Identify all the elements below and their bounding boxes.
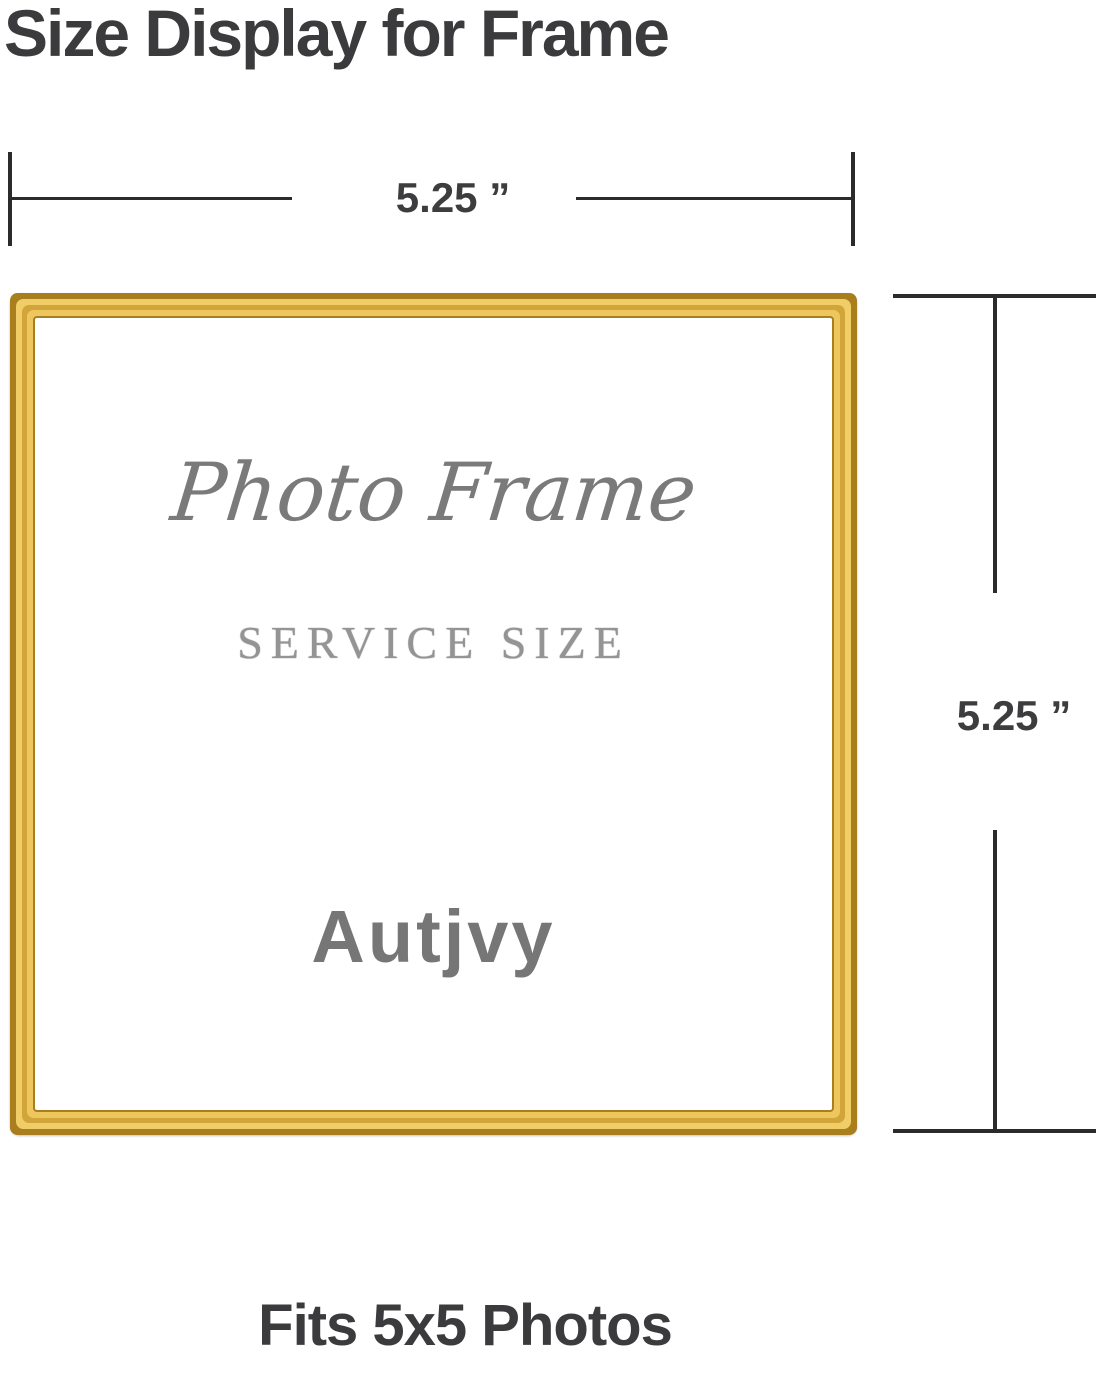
width-dimension-label: 5.25 ” <box>396 174 510 222</box>
width-dimension-line-left <box>8 197 292 200</box>
frame-script-text: Photo Frame <box>167 446 701 539</box>
fits-caption: Fits 5x5 Photos <box>258 1292 672 1359</box>
height-dimension-bottom-tick <box>893 1129 1096 1133</box>
height-dimension-line-lower <box>993 830 997 1132</box>
page-title: Size Display for Frame <box>4 0 668 72</box>
height-dimension-line-upper <box>993 297 997 593</box>
height-dimension-label: 5.25 ” <box>957 692 1071 740</box>
width-dimension-line-right <box>576 197 855 200</box>
photo-frame-insert: Photo Frame SERVICE SIZE Autjvy <box>35 318 832 1110</box>
width-dimension-right-tick <box>851 152 855 246</box>
frame-brand-text: Autjvy <box>311 894 555 979</box>
photo-frame: Photo Frame SERVICE SIZE Autjvy <box>10 293 857 1135</box>
size-display-figure: Size Display for Frame 5.25 ” Photo Fram… <box>0 0 1098 1382</box>
frame-service-size-text: SERVICE SIZE <box>237 616 630 669</box>
